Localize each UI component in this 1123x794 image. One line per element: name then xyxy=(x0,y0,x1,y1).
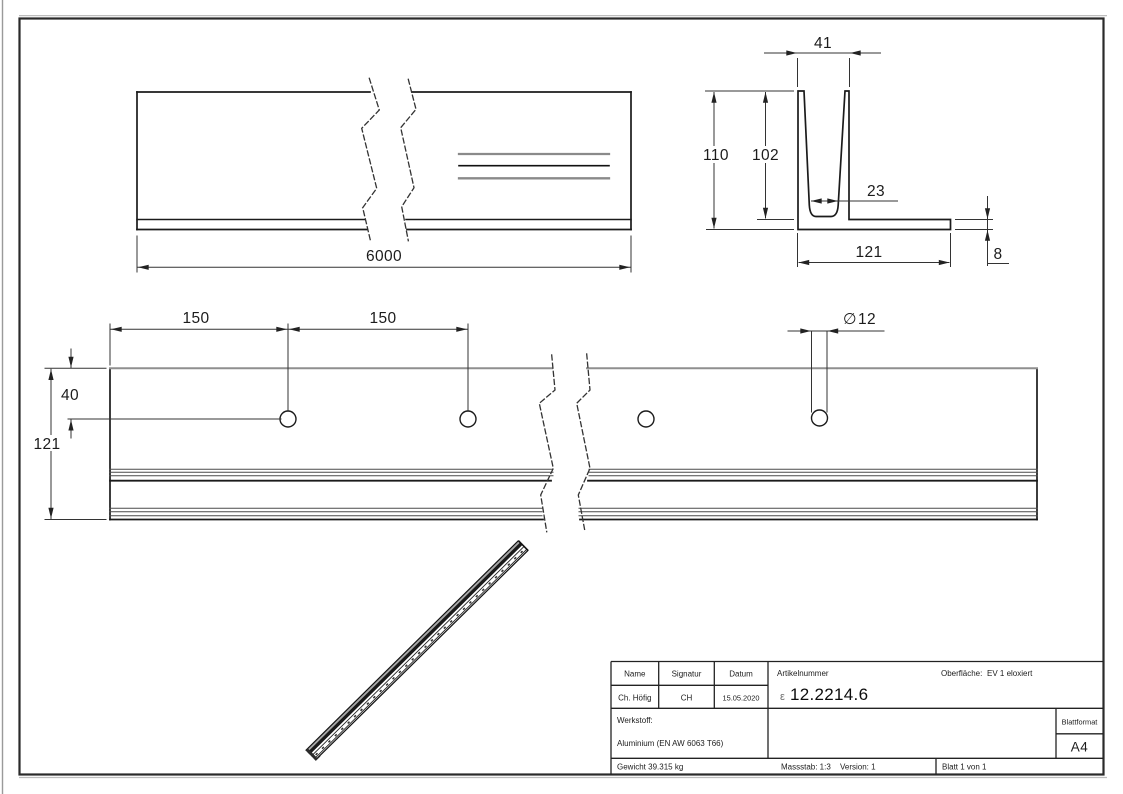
break-line xyxy=(362,78,380,241)
logo-glyph: ε xyxy=(780,691,785,703)
dim-height-110: 110 xyxy=(699,92,732,229)
signatur-label: Signatur xyxy=(672,670,702,679)
break-line xyxy=(539,355,555,532)
oberflaeche-label: Oberfläche: xyxy=(941,669,982,678)
massstab-text: Massstab: 1:3 xyxy=(781,763,831,772)
dim-hole-offset-40: 40 xyxy=(45,349,281,438)
dim-base-thickness-8: 8 xyxy=(955,196,1009,266)
dim-length-6000: 6000 xyxy=(137,236,631,272)
datum-label: Datum xyxy=(729,670,753,679)
name-label: Name xyxy=(624,670,646,679)
dim-text-102: 102 xyxy=(752,147,779,164)
dim-text-41: 41 xyxy=(814,35,832,52)
profile-edge-lines-upper xyxy=(110,469,1037,475)
hole-3 xyxy=(638,411,654,427)
dim-text-121-base: 121 xyxy=(855,244,882,261)
artikelnummer-value: 12.2214.6 xyxy=(790,685,868,704)
gewicht-text: Gewicht 39.315 kg xyxy=(617,763,683,772)
dim-text-110: 110 xyxy=(703,147,729,164)
dim-hole-pitch: 150 150 xyxy=(110,310,468,410)
blattformat-label: Blattformat xyxy=(1062,718,1098,727)
oberflaeche-value: EV 1 eloxiert xyxy=(987,669,1033,678)
dim-text-6000: 6000 xyxy=(366,248,402,265)
artikelnummer-label: Artikelnummer xyxy=(777,669,829,678)
dim-slot-width-23: 23 xyxy=(811,183,898,201)
side-view: 6000 xyxy=(137,78,631,272)
dim-text-150-a: 150 xyxy=(182,310,209,327)
hole-4 xyxy=(812,410,828,426)
werkstoff-value: Aluminium (EN AW 6063 T66) xyxy=(617,739,724,748)
dim-text-150-b: 150 xyxy=(369,310,396,327)
dim-text-121-width: 121 xyxy=(33,436,60,453)
dim-text-40: 40 xyxy=(61,387,79,404)
blattformat-value: A4 xyxy=(1071,740,1089,755)
break-line xyxy=(577,354,590,532)
isometric-view xyxy=(306,541,529,761)
profile-edge-lines-lower xyxy=(110,508,1037,516)
dim-hole-diameter: ∅ 12 xyxy=(788,310,884,412)
dim-text-12: 12 xyxy=(858,311,876,328)
dim-text-8: 8 xyxy=(993,246,1002,263)
dim-top-width-41: 41 xyxy=(764,35,881,87)
title-block: Name Signatur Datum Artikelnummer Oberfl… xyxy=(611,662,1103,775)
cross-section-view: 41 110 102 23 121 xyxy=(699,35,1009,267)
name-value: Ch. Höfig xyxy=(618,694,651,703)
drawing-sheet: 6000 41 110 102 xyxy=(0,0,1123,794)
hole-2 xyxy=(460,411,476,427)
dim-inner-depth-102: 102 xyxy=(749,92,782,219)
break-line xyxy=(401,79,416,240)
hole-row-texture xyxy=(316,549,525,755)
diameter-symbol: ∅ xyxy=(843,310,857,328)
hole-1 xyxy=(280,411,296,427)
profile-outline xyxy=(798,91,951,230)
cad-drawing: 6000 41 110 102 xyxy=(0,0,1123,794)
dim-text-23: 23 xyxy=(867,183,885,200)
werkstoff-label: Werkstoff: xyxy=(617,716,653,725)
dim-base-width-121: 121 xyxy=(798,233,951,267)
blatt-text: Blatt 1 von 1 xyxy=(942,763,987,772)
top-view: 150 150 40 121 ∅ 12 xyxy=(30,310,1037,532)
signatur-value: CH xyxy=(681,694,693,703)
datum-value: 15.05.2020 xyxy=(723,694,760,703)
version-text: Version: 1 xyxy=(840,763,876,772)
